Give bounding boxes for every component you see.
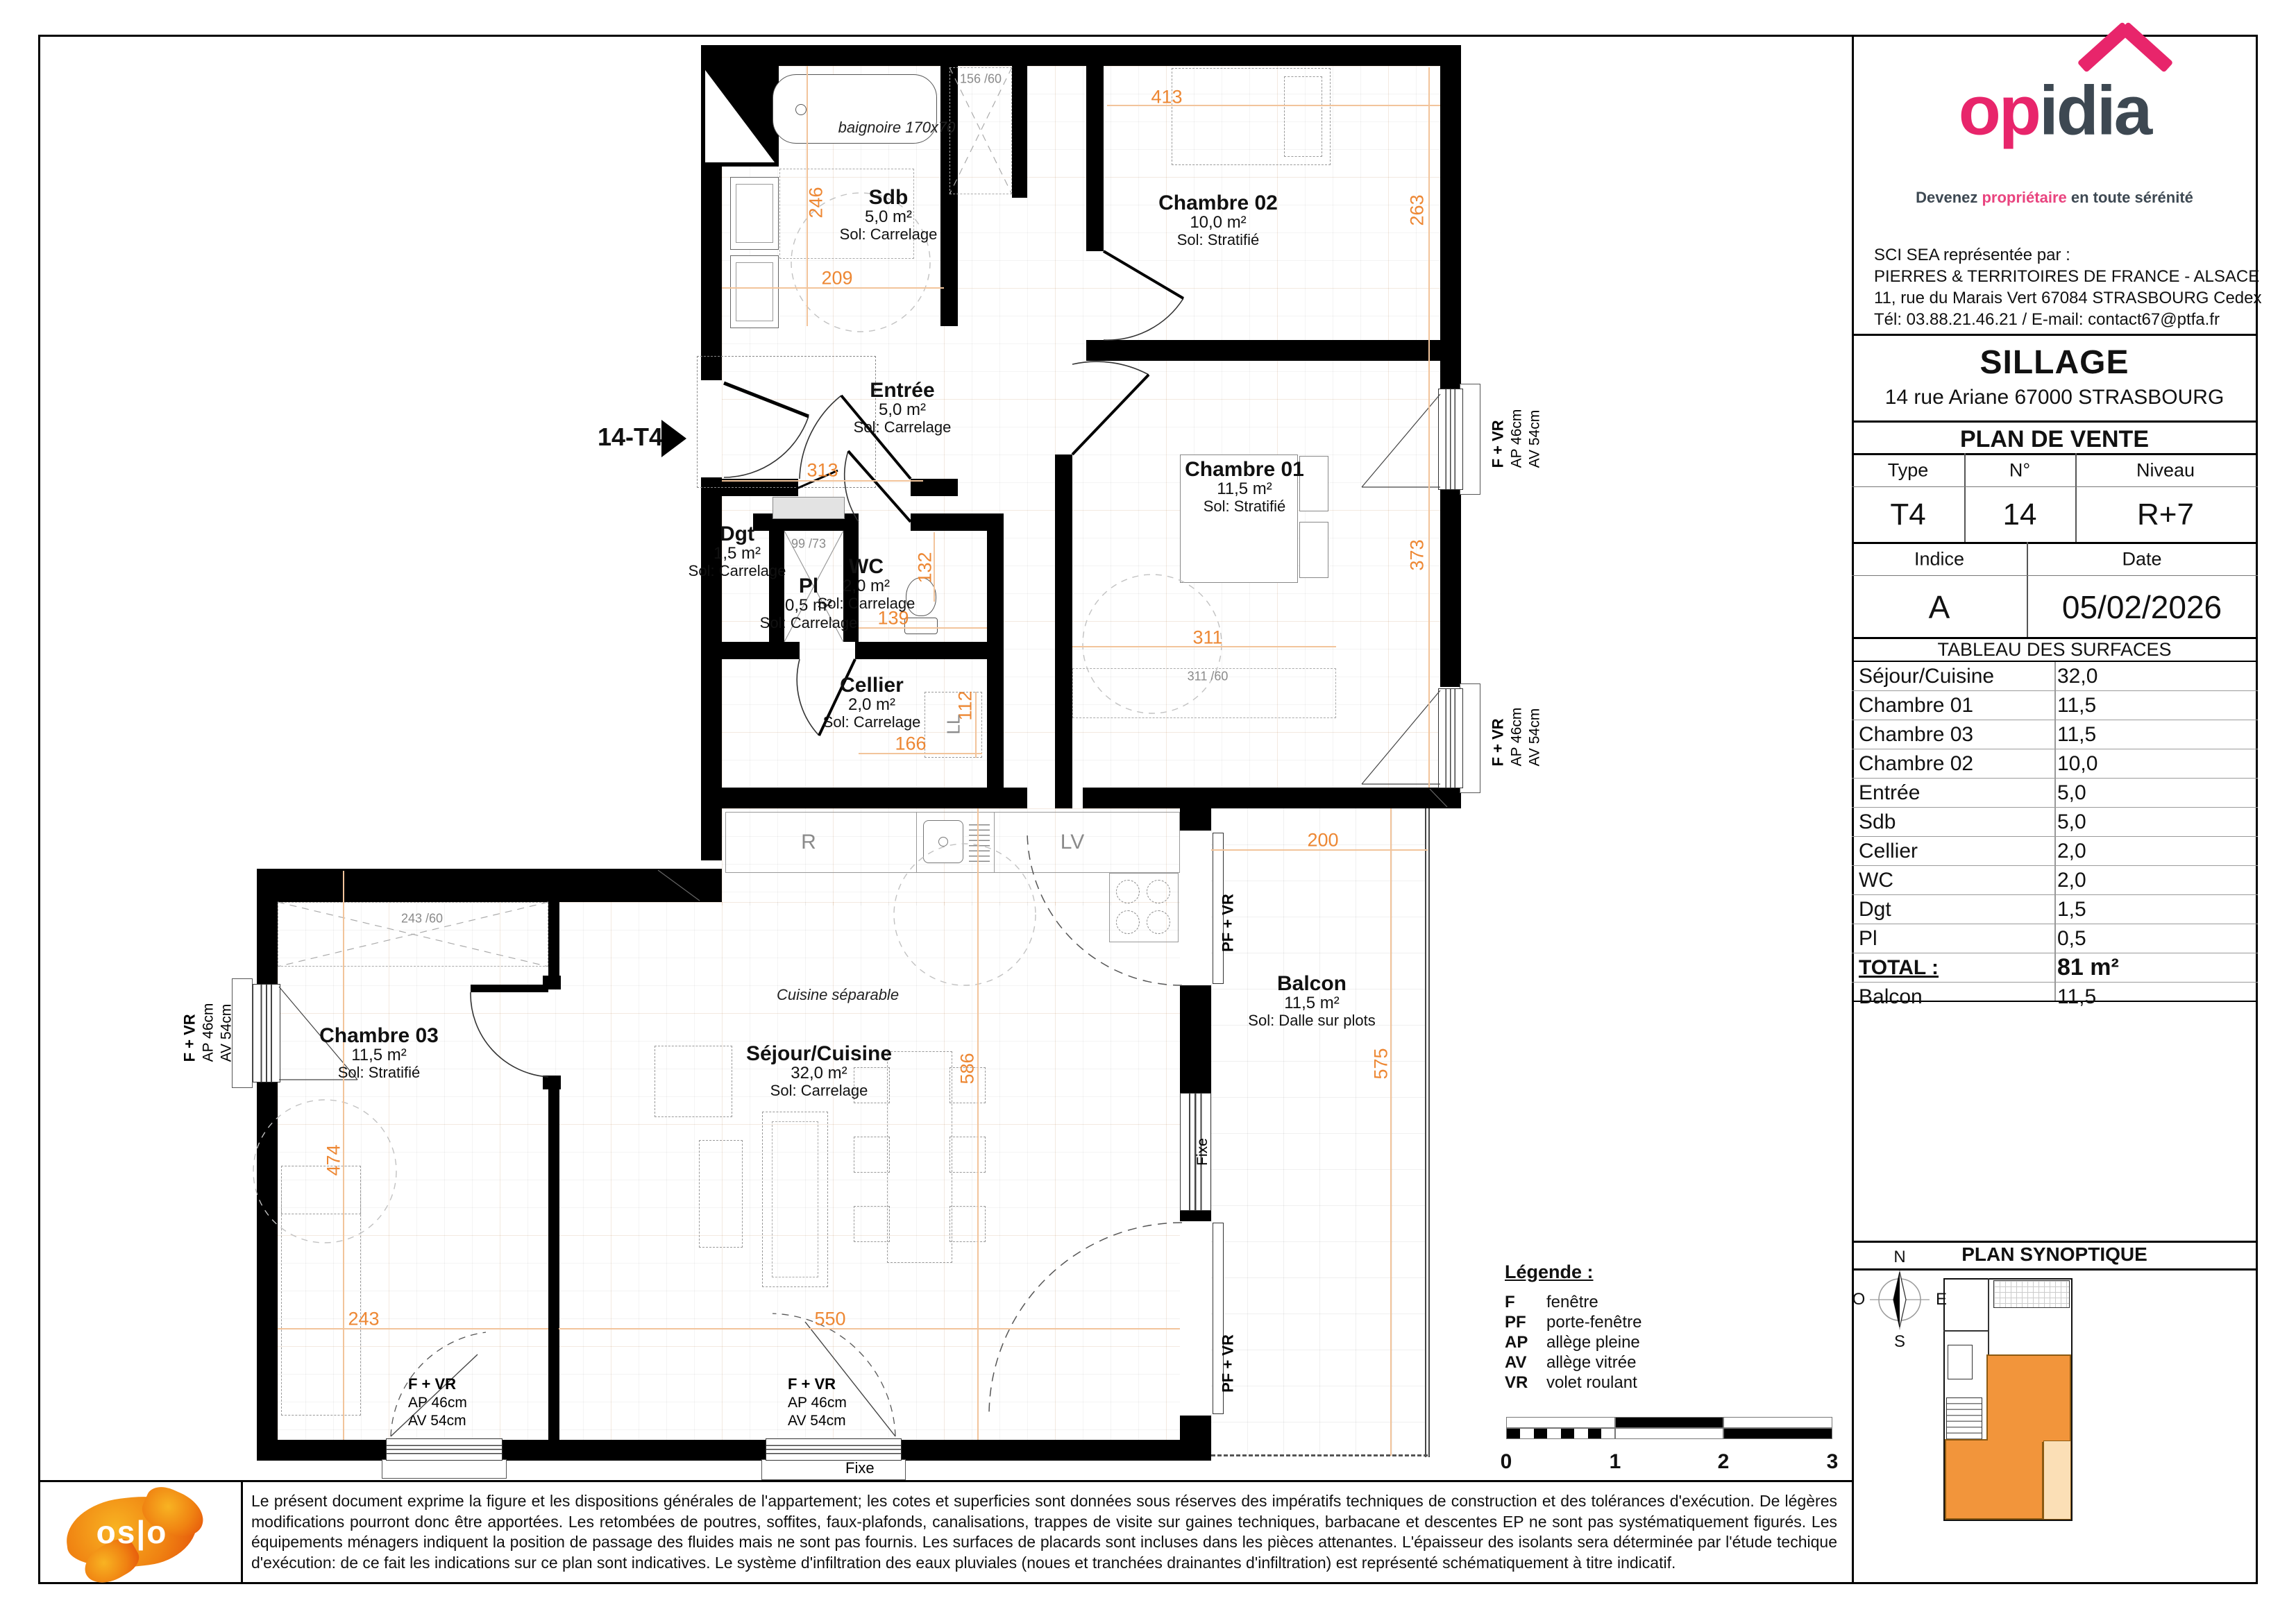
scale-2: 2: [1718, 1450, 1730, 1474]
date-value: 05/02/2026: [2062, 588, 2222, 626]
dim-line: [1428, 67, 1430, 385]
synoptique-title: PLAN SYNOPTIQUE: [1852, 1243, 2258, 1266]
room-label-chambre02: Chambre 02 10,0 m² Sol: Stratifié: [1158, 193, 1278, 248]
room-label-sdb: Sdb 5,0 m² Sol: Carrelage: [840, 187, 938, 243]
surfaces-table: Séjour/Cuisine32,0 Chambre 0111,5 Chambr…: [1852, 661, 2258, 1002]
note-fridge: R: [801, 831, 816, 854]
panel-line: [1852, 1268, 2258, 1271]
synoptique-unit-highlight: [1986, 1354, 2071, 1441]
legend-title: Légende :: [1505, 1261, 1594, 1283]
company-line: 11, rue du Marais Vert 67084 STRASBOURG …: [1874, 287, 2261, 309]
dim-550: 550: [814, 1309, 845, 1330]
disclaimer-text: Le présent document exprime la figure et…: [251, 1491, 1837, 1581]
synoptique-wall: [1988, 1278, 1989, 1361]
niveau-label: Niveau: [2136, 460, 2195, 482]
dim-263: 263: [1407, 194, 1428, 226]
room-label-wc: WC 2,0 m² Sol: Carrelage: [818, 556, 915, 612]
opidia-tagline: Devenez propriétaire en toute sérénité: [1916, 189, 2193, 207]
scale-1: 1: [1610, 1450, 1621, 1474]
dim-243: 243: [348, 1309, 379, 1330]
legend-item-ap: APallège pleine: [1505, 1333, 1640, 1353]
indice-value: A: [1929, 588, 1950, 626]
dim-line: [1390, 808, 1392, 1456]
dim-311: 311: [1192, 627, 1222, 649]
surface-row: Sdb5,0: [1852, 808, 2258, 837]
scale-3: 3: [1827, 1450, 1839, 1474]
dim-413: 413: [1151, 87, 1182, 108]
panel-line: [1852, 420, 2258, 423]
window-label-chambre02: F + VR AP 46cm AV 54cm: [1489, 409, 1544, 468]
surfaces-title: TABLEAU DES SURFACES: [1852, 639, 2258, 661]
dim-line: [559, 1328, 1180, 1329]
project-block: SILLAGE 14 rue Ariane 67000 STRASBOURG: [1852, 343, 2258, 409]
surface-balcon-row: Balcon11,5: [1852, 983, 2258, 1011]
panel-line: [1852, 453, 2258, 455]
synoptique-unit-highlight: [1945, 1439, 2043, 1520]
dim-200: 200: [1307, 830, 1338, 851]
date-label: Date: [2122, 549, 2161, 570]
surface-row: Dgt1,5: [1852, 895, 2258, 924]
company-info: SCI SEA représentée par : PIERRES & TERR…: [1874, 244, 2261, 330]
scale-0: 0: [1501, 1450, 1512, 1474]
dim-132: 132: [915, 552, 936, 583]
surface-row: Séjour/Cuisine32,0: [1852, 662, 2258, 691]
synoptique-balcony-highlight: [2043, 1441, 2071, 1520]
surface-row: Entrée5,0: [1852, 779, 2258, 808]
cell-divider: [1964, 453, 1966, 542]
legend-item-vr: VRvolet roulant: [1505, 1373, 1637, 1393]
plan-de-vente-sheet: 413 246 209 263 313 132 139 112 166 373 …: [0, 0, 2296, 1623]
dim-166: 166: [895, 733, 926, 755]
note-pl-dim: 99 /73: [791, 537, 826, 552]
surface-row: Cellier2,0: [1852, 837, 2258, 866]
window-label-chambre03-south: F + VR AP 46cm AV 54cm: [408, 1375, 467, 1430]
unit-marker-label: 14-T4: [598, 423, 663, 452]
room-label-chambre03: Chambre 03 11,5 m² Sol: Stratifié: [319, 1026, 439, 1081]
company-line: SCI SEA représentée par :: [1874, 244, 2261, 266]
panel-line: [1852, 542, 2258, 544]
dim-246: 246: [806, 187, 827, 218]
compass-e: E: [1936, 1290, 1947, 1309]
dim-313: 313: [807, 460, 838, 482]
surface-row: Pl0,5: [1852, 924, 2258, 953]
type-label: Type: [1888, 460, 1929, 482]
project-address: 14 rue Ariane 67000 STRASBOURG: [1852, 386, 2258, 409]
dim-line: [278, 1328, 548, 1329]
compass-s: S: [1894, 1332, 1905, 1352]
window-label-chambre01: F + VR AP 46cm AV 54cm: [1489, 708, 1544, 767]
room-label-chambre01: Chambre 01 11,5 m² Sol: Stratifié: [1185, 459, 1304, 515]
cell-divider: [1852, 575, 2258, 576]
surface-row: Chambre 0111,5: [1852, 691, 2258, 720]
window-label-pf-balcon-2: PF + VR: [1219, 1334, 1238, 1393]
oslo-logo-text: os|o: [96, 1513, 168, 1551]
note-closet-entree: 156 /60: [960, 72, 1002, 87]
cell-divider: [2027, 542, 2028, 637]
dim-575: 575: [1371, 1048, 1392, 1079]
window-label-fixe-balcon: Fixe: [1194, 1138, 1212, 1166]
indice-label: Indice: [1914, 549, 1964, 570]
synoptique-terrace: [1993, 1280, 2070, 1308]
niveau-value: R+7: [2137, 498, 2194, 532]
footer-line: [38, 1480, 1854, 1482]
room-label-balcon: Balcon 11,5 m² Sol: Dalle sur plots: [1248, 974, 1375, 1029]
company-line: Tél: 03.88.21.46.21 / E-mail: contact67@…: [1874, 309, 2261, 330]
legend-item-f: Ffenêtre: [1505, 1293, 1598, 1313]
panel-line: [1852, 1241, 2258, 1243]
room-label-cellier: Cellier 2,0 m² Sol: Carrelage: [823, 675, 921, 731]
note-washing-machine: LL: [943, 715, 965, 735]
surface-row: Chambre 0311,5: [1852, 720, 2258, 749]
surface-row: Chambre 0210,0: [1852, 749, 2258, 779]
note-dishwasher: LV: [1061, 831, 1084, 854]
num-value: 14: [2003, 498, 2037, 532]
doc-title: PLAN DE VENTE: [1852, 426, 2258, 453]
window-label-fixe-south: Fixe: [845, 1459, 875, 1477]
project-name: SILLAGE: [1852, 343, 2258, 382]
company-line: PIERRES & TERRITOIRES DE FRANCE - ALSACE: [1874, 266, 2261, 287]
window-label-chambre03: F + VR AP 46cm AV 54cm: [181, 1003, 236, 1062]
legend-item-av: AVallège vitrée: [1505, 1353, 1636, 1373]
window-label-sejour-south: F + VR AP 46cm AV 54cm: [788, 1375, 847, 1430]
compass-o: O: [1852, 1290, 1866, 1309]
surface-row: WC2,0: [1852, 866, 2258, 895]
type-value: T4: [1890, 498, 1925, 532]
note-baignoire: baignoire 170x70: [838, 119, 956, 137]
room-label-entree: Entrée 5,0 m² Sol: Carrelage: [854, 380, 952, 436]
unit-marker-arrow-icon: [661, 420, 686, 457]
surface-total-row: TOTAL :81 m²: [1852, 953, 2258, 983]
opidia-logo: opidia: [1959, 71, 2150, 151]
dim-586: 586: [957, 1053, 979, 1084]
note-closet-ch03: 243 /60: [401, 912, 443, 926]
footer-divider: [241, 1480, 243, 1584]
cell-divider: [2075, 453, 2077, 542]
compass-n: N: [1893, 1248, 1905, 1267]
room-label-sejour: Séjour/Cuisine 32,0 m² Sol: Carrelage: [746, 1044, 892, 1099]
window-label-pf-balcon-1: PF + VR: [1219, 894, 1238, 952]
cell-divider: [1852, 486, 2258, 487]
dim-line: [1428, 361, 1430, 788]
dim-line: [977, 808, 979, 1440]
dim-373: 373: [1407, 539, 1428, 570]
synoptique-elevator: [1948, 1345, 1973, 1379]
note-closet-ch01: 311 /60: [1188, 670, 1229, 684]
dim-209: 209: [821, 268, 852, 289]
panel-line: [1852, 334, 2258, 336]
synoptique-wall: [1943, 1330, 1989, 1332]
num-label: N°: [2009, 460, 2030, 482]
note-cuisine-separable: Cuisine séparable: [777, 986, 899, 1004]
room-label-dgt: Dgt 1,5 m² Sol: Carrelage: [689, 524, 786, 579]
dim-474: 474: [323, 1144, 345, 1175]
legend-item-pf: PFporte-fenêtre: [1505, 1313, 1641, 1333]
